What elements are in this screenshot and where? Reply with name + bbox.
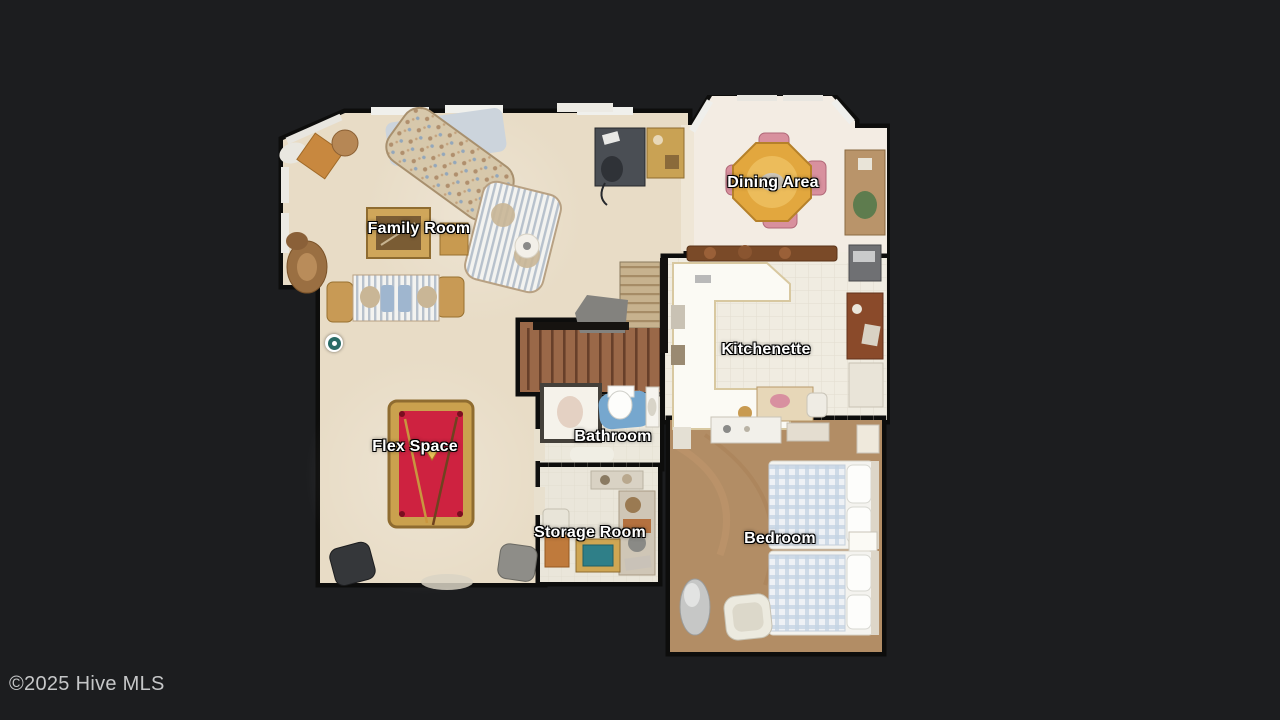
camera-position-marker-ring [328,337,341,350]
floorplan-canvas[interactable] [275,95,890,657]
camera-position-marker[interactable] [325,334,343,352]
floorplan-viewer: Family Room Dining Area Kitchenette Bath… [0,0,1280,720]
camera-position-marker-dot [332,341,337,346]
copyright-watermark: ©2025 Hive MLS [9,673,165,696]
